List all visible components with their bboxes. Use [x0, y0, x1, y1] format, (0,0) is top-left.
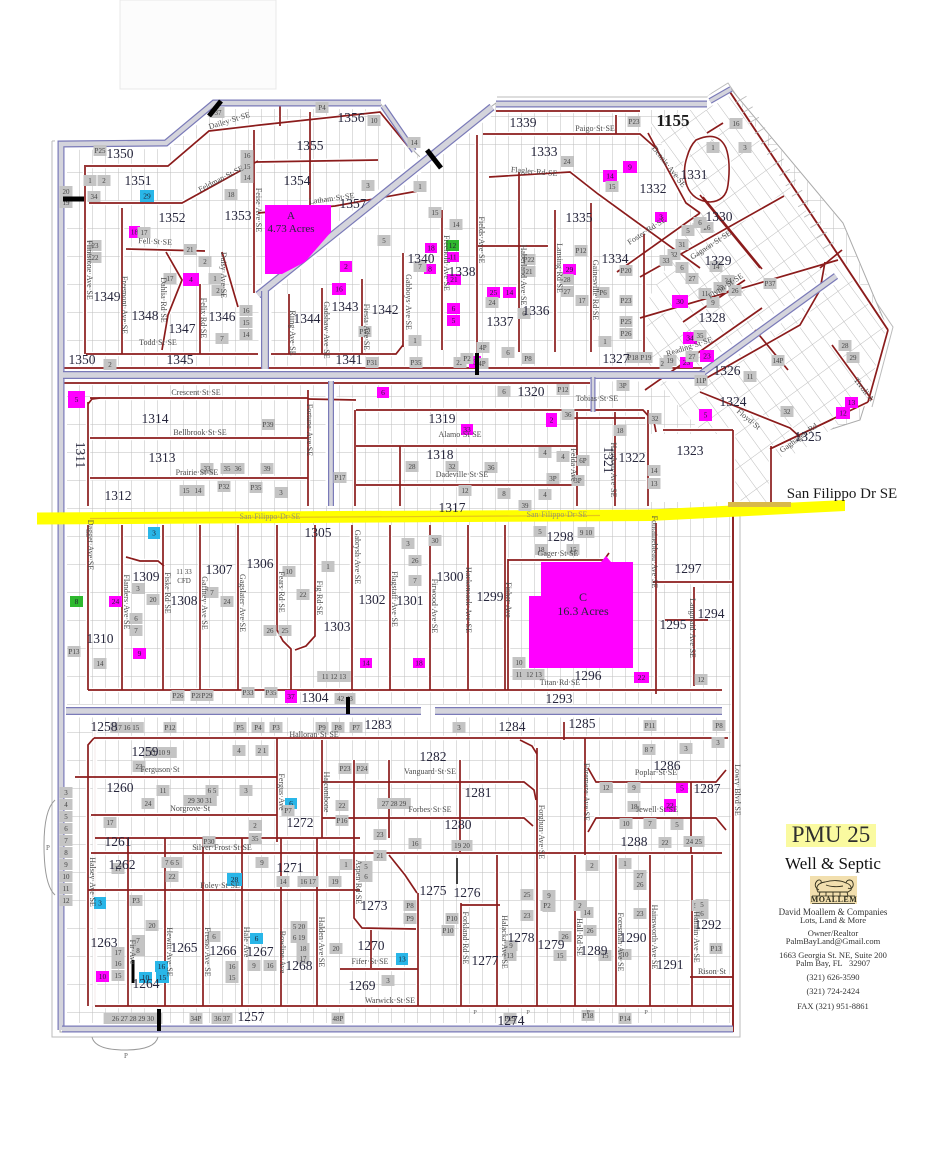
- svg-text:1155: 1155: [656, 111, 689, 130]
- svg-text:36: 36: [565, 411, 573, 419]
- svg-text:P9: P9: [406, 915, 414, 923]
- svg-text:6: 6: [452, 304, 456, 313]
- svg-text:1297: 1297: [675, 561, 702, 576]
- svg-text:12: 12: [603, 784, 611, 792]
- svg-text:22: 22: [638, 673, 646, 682]
- svg-text:FAX (321) 951-8861: FAX (321) 951-8861: [797, 1001, 869, 1011]
- svg-text:3: 3: [386, 977, 390, 985]
- svg-text:P12: P12: [576, 247, 587, 255]
- svg-text:Forkland·Rd·SE: Forkland·Rd·SE: [461, 912, 470, 965]
- svg-text:Langmaid·Ave·SE: Langmaid·Ave·SE: [688, 598, 697, 658]
- svg-text:1342: 1342: [372, 302, 399, 317]
- svg-text:28: 28: [409, 463, 417, 471]
- svg-text:1313: 1313: [149, 450, 176, 465]
- svg-text:Ferguson·St: Ferguson·St: [141, 765, 181, 774]
- svg-text:6: 6: [680, 264, 684, 272]
- svg-text:12: 12: [839, 409, 847, 418]
- svg-text:18: 18: [617, 427, 625, 435]
- svg-text:Halcombone: Halcombone: [322, 772, 331, 813]
- svg-text:14: 14: [97, 660, 105, 668]
- svg-text:14: 14: [280, 878, 288, 886]
- svg-text:16: 16: [267, 962, 275, 970]
- svg-text:26: 26: [267, 627, 275, 635]
- svg-text:5: 5: [364, 863, 368, 871]
- svg-text:1: 1: [603, 338, 607, 346]
- svg-text:24 25: 24 25: [686, 838, 702, 846]
- svg-text:1298: 1298: [547, 529, 574, 544]
- svg-text:Todd·St·SE: Todd·St·SE: [139, 338, 177, 347]
- svg-text:1: 1: [623, 860, 627, 868]
- svg-text:1314: 1314: [142, 411, 169, 426]
- svg-text:27: 27: [637, 872, 645, 880]
- svg-text:P13: P13: [69, 648, 80, 656]
- svg-text:7: 7: [210, 589, 214, 597]
- svg-text:P10: P10: [443, 927, 454, 935]
- svg-text:7: 7: [64, 837, 68, 845]
- svg-text:22: 22: [169, 873, 177, 881]
- svg-text:16: 16: [243, 307, 251, 315]
- svg-text:4P: 4P: [478, 360, 486, 368]
- svg-text:16: 16: [115, 960, 123, 968]
- svg-text:15: 15: [609, 183, 617, 191]
- svg-text:27: 27: [689, 275, 697, 283]
- svg-text:P19: P19: [641, 354, 652, 362]
- svg-text:Haberland·Ave·SE: Haberland·Ave·SE: [519, 245, 528, 306]
- svg-text:9: 9: [547, 892, 551, 900]
- svg-text:Prairie·St·SE: Prairie·St·SE: [176, 468, 219, 477]
- svg-text:4: 4: [189, 275, 193, 284]
- svg-text:11: 11: [747, 373, 754, 381]
- svg-text:San·Filippo·Dr·SE: San·Filippo·Dr·SE: [527, 510, 588, 519]
- svg-text:9: 9: [138, 649, 142, 658]
- svg-text:P32: P32: [219, 483, 230, 491]
- svg-text:1291: 1291: [657, 957, 684, 972]
- svg-text:1337: 1337: [487, 314, 514, 329]
- svg-text:1282: 1282: [420, 749, 447, 764]
- svg-text:37: 37: [287, 692, 295, 701]
- svg-text:15: 15: [115, 972, 123, 980]
- svg-text:P26: P26: [621, 330, 632, 338]
- svg-text:1288: 1288: [621, 834, 648, 849]
- svg-text:1327: 1327: [603, 351, 630, 366]
- svg-text:9: 9: [64, 861, 68, 869]
- svg-text:Forbes·St·SE: Forbes·St·SE: [408, 805, 451, 814]
- svg-text:36 37: 36 37: [214, 1015, 230, 1023]
- svg-text:1351: 1351: [125, 173, 152, 188]
- svg-text:8: 8: [502, 490, 506, 498]
- svg-text:San Filippo Dr SE: San Filippo Dr SE: [787, 486, 897, 502]
- svg-text:5: 5: [382, 237, 386, 245]
- svg-text:Lowry·Blvd·SE: Lowry·Blvd·SE: [733, 764, 742, 816]
- svg-text:14: 14: [651, 467, 659, 475]
- svg-text:1: 1: [418, 183, 422, 191]
- svg-text:P24: P24: [357, 765, 368, 773]
- svg-text:15: 15: [229, 974, 237, 982]
- svg-text:1277: 1277: [472, 953, 499, 968]
- svg-text:1332: 1332: [640, 181, 667, 196]
- svg-text:3: 3: [684, 745, 688, 753]
- svg-text:35: 35: [224, 465, 232, 473]
- svg-text:1352: 1352: [159, 210, 186, 225]
- svg-text:26: 26: [732, 287, 740, 295]
- svg-text:1340: 1340: [408, 251, 435, 266]
- svg-text:MOALLEM: MOALLEM: [811, 895, 858, 904]
- svg-text:Felix·Rd·SE: Felix·Rd·SE: [199, 298, 208, 339]
- svg-text:Foley·St·SE: Foley·St·SE: [200, 881, 240, 890]
- svg-text:48P: 48P: [333, 1015, 344, 1023]
- svg-text:1299: 1299: [477, 589, 504, 604]
- svg-text:22: 22: [662, 839, 670, 847]
- svg-text:1268: 1268: [286, 958, 313, 973]
- svg-text:3: 3: [136, 585, 140, 593]
- svg-text:Alamo·St·SE: Alamo·St·SE: [438, 430, 481, 439]
- svg-text:Forghun·Ave·SE: Forghun·Ave·SE: [537, 805, 546, 859]
- svg-text:P11: P11: [645, 722, 656, 730]
- svg-text:P: P: [526, 1009, 530, 1016]
- svg-text:1290: 1290: [620, 930, 647, 945]
- svg-text:Warwick·St·SE: Warwick·St·SE: [365, 996, 415, 1005]
- svg-text:5: 5: [64, 813, 68, 821]
- svg-text:Rison·St: Rison·St: [698, 967, 727, 976]
- svg-text:P37: P37: [765, 280, 776, 288]
- svg-text:5: 5: [452, 316, 456, 325]
- svg-text:1328: 1328: [699, 310, 726, 325]
- svg-text:6: 6: [381, 388, 385, 397]
- svg-text:1356: 1356: [338, 110, 365, 125]
- svg-text:P26: P26: [173, 692, 184, 700]
- svg-text:Fig·Rd·SE: Fig·Rd·SE: [315, 581, 324, 616]
- svg-text:6: 6: [506, 349, 510, 357]
- svg-text:San·Filippo·Dr·SE: San·Filippo·Dr·SE: [240, 512, 301, 521]
- svg-text:1318: 1318: [427, 447, 454, 462]
- svg-text:1280: 1280: [445, 817, 472, 832]
- svg-text:18: 18: [131, 228, 139, 237]
- svg-text:6: 6: [255, 934, 259, 943]
- svg-text:15: 15: [557, 952, 565, 960]
- svg-text:5: 5: [675, 821, 679, 829]
- svg-text:1355: 1355: [297, 138, 324, 153]
- svg-text:39: 39: [522, 502, 530, 510]
- svg-text:1357: 1357: [340, 196, 367, 211]
- svg-text:16: 16: [244, 152, 252, 160]
- svg-text:1263: 1263: [91, 935, 118, 950]
- svg-text:14: 14: [411, 139, 419, 147]
- svg-text:Feise·Ave·SE: Feise·Ave·SE: [254, 188, 263, 232]
- svg-text:25: 25: [282, 627, 290, 635]
- svg-text:1311: 1311: [73, 442, 88, 469]
- svg-text:2: 2: [590, 862, 594, 870]
- svg-text:3: 3: [366, 182, 370, 190]
- svg-text:P31: P31: [367, 359, 378, 367]
- svg-text:P: P: [586, 1009, 590, 1016]
- svg-text:17: 17: [579, 297, 587, 305]
- svg-text:17: 17: [107, 819, 115, 827]
- svg-text:5: 5: [704, 411, 708, 420]
- svg-text:1: 1: [413, 337, 417, 345]
- svg-text:29: 29: [143, 192, 151, 201]
- svg-text:7: 7: [413, 577, 417, 585]
- svg-text:24: 24: [145, 800, 153, 808]
- svg-text:1: 1: [326, 563, 330, 571]
- svg-text:4: 4: [543, 449, 547, 457]
- svg-text:1272: 1272: [287, 815, 314, 830]
- svg-text:1350: 1350: [107, 146, 134, 161]
- svg-text:13: 13: [651, 480, 659, 488]
- svg-text:(321) 724-2424: (321) 724-2424: [806, 986, 860, 996]
- svg-text:11: 11: [516, 671, 523, 679]
- svg-text:P35: P35: [411, 359, 422, 367]
- svg-text:1258: 1258: [91, 719, 118, 734]
- svg-text:14: 14: [362, 659, 370, 668]
- svg-text:P13: P13: [711, 945, 722, 953]
- svg-text:Fifer·St·SE: Fifer·St·SE: [352, 957, 389, 966]
- svg-text:1: 1: [344, 861, 348, 869]
- svg-text:P: P: [473, 1009, 477, 1016]
- svg-text:1259: 1259: [132, 744, 159, 759]
- svg-text:1331: 1331: [681, 167, 708, 182]
- svg-text:Fortune·Ave·SE: Fortune·Ave·SE: [305, 404, 314, 456]
- svg-text:1343: 1343: [332, 299, 359, 314]
- svg-text:11P: 11P: [696, 377, 707, 385]
- svg-text:5 20: 5 20: [293, 923, 306, 931]
- svg-text:1338: 1338: [449, 264, 476, 279]
- svg-text:Dagget·Ave·SE: Dagget·Ave·SE: [86, 520, 95, 571]
- svg-text:6P: 6P: [579, 457, 587, 465]
- svg-text:20: 20: [63, 188, 71, 196]
- svg-text:8: 8: [75, 597, 79, 606]
- svg-text:6: 6: [134, 615, 138, 623]
- svg-text:9: 9: [628, 163, 632, 172]
- svg-text:6 19: 6 19: [293, 934, 306, 942]
- svg-text:16: 16: [229, 963, 237, 971]
- svg-text:P8: P8: [524, 355, 532, 363]
- svg-text:Firwood·Ave·SE: Firwood·Ave·SE: [430, 579, 439, 634]
- svg-text:16.3 Acres: 16.3 Acres: [557, 604, 609, 618]
- svg-text:3: 3: [244, 787, 248, 795]
- svg-text:1289: 1289: [581, 943, 608, 958]
- svg-text:P3: P3: [132, 897, 140, 905]
- svg-text:1257: 1257: [238, 1009, 265, 1024]
- svg-text:20: 20: [149, 922, 157, 930]
- svg-text:25: 25: [490, 288, 498, 297]
- svg-text:1281: 1281: [465, 785, 492, 800]
- svg-text:1335: 1335: [566, 210, 593, 225]
- svg-text:4P: 4P: [479, 344, 487, 352]
- svg-text:7: 7: [220, 335, 224, 343]
- svg-text:Daisy·Ave·SE: Daisy·Ave·SE: [219, 252, 228, 298]
- svg-text:P16: P16: [337, 817, 348, 825]
- svg-text:P23: P23: [629, 118, 640, 126]
- svg-text:14: 14: [243, 331, 251, 339]
- svg-text:1310: 1310: [87, 631, 114, 646]
- svg-text:23: 23: [524, 912, 532, 920]
- svg-text:20: 20: [150, 596, 158, 604]
- svg-text:36: 36: [488, 464, 496, 472]
- svg-text:2: 2: [108, 361, 112, 369]
- svg-text:1283: 1283: [365, 717, 392, 732]
- svg-text:1286: 1286: [654, 758, 681, 773]
- svg-text:Fields·Ave·SE: Fields·Ave·SE: [477, 217, 486, 264]
- svg-text:1271: 1271: [277, 860, 304, 875]
- svg-text:1322: 1322: [619, 450, 646, 465]
- svg-text:23: 23: [703, 352, 711, 361]
- svg-text:5: 5: [680, 784, 684, 793]
- svg-text:8 7: 8 7: [645, 746, 654, 754]
- svg-text:Gabboys·Ave·SE: Gabboys·Ave·SE: [404, 274, 413, 330]
- svg-text:P33: P33: [243, 689, 254, 697]
- svg-text:30: 30: [432, 537, 440, 545]
- svg-text:1304: 1304: [302, 690, 329, 705]
- svg-text:23: 23: [637, 910, 645, 918]
- svg-text:18: 18: [415, 659, 423, 668]
- svg-text:P: P: [124, 1052, 128, 1060]
- svg-text:1333: 1333: [531, 144, 558, 159]
- svg-text:3: 3: [743, 144, 747, 152]
- svg-text:Felda·Ave: Felda·Ave: [569, 448, 578, 482]
- svg-text:Fell·St·SE: Fell·St·SE: [138, 236, 172, 247]
- svg-text:P25: P25: [621, 318, 632, 326]
- svg-text:4: 4: [64, 801, 68, 809]
- svg-text:1265: 1265: [171, 940, 198, 955]
- svg-text:4: 4: [543, 491, 547, 499]
- svg-text:34P: 34P: [191, 1015, 202, 1023]
- svg-text:1300: 1300: [437, 569, 464, 584]
- svg-text:10: 10: [516, 659, 524, 667]
- svg-text:Gainesville·Rd·SE: Gainesville·Rd·SE: [591, 260, 600, 321]
- svg-text:1278: 1278: [508, 930, 535, 945]
- svg-text:16: 16: [335, 285, 343, 294]
- svg-text:3: 3: [279, 489, 283, 497]
- svg-text:1312: 1312: [105, 488, 132, 503]
- svg-text:Gager·St·SE: Gager·St·SE: [538, 549, 579, 558]
- svg-text:4: 4: [237, 747, 241, 755]
- svg-text:22: 22: [300, 591, 308, 599]
- svg-text:3: 3: [406, 540, 410, 548]
- svg-text:14: 14: [453, 221, 461, 229]
- svg-text:Hackensack·Ave·SE: Hackensack·Ave·SE: [464, 567, 473, 633]
- svg-text:42 43: 42 43: [337, 695, 353, 703]
- svg-text:Paigo·St·SE: Paigo·St·SE: [575, 124, 615, 133]
- svg-text:2: 2: [550, 416, 554, 425]
- svg-text:Fiesta·Ave·SE: Fiesta·Ave·SE: [362, 304, 371, 351]
- svg-text:1264: 1264: [133, 976, 160, 991]
- svg-text:P23: P23: [621, 297, 632, 305]
- svg-text:1261: 1261: [105, 834, 132, 849]
- svg-text:1303: 1303: [324, 619, 351, 634]
- svg-text:PMU 25: PMU 25: [792, 822, 871, 847]
- svg-text:14: 14: [244, 174, 252, 182]
- svg-text:Dadeville·St·SE: Dadeville·St·SE: [436, 470, 489, 479]
- svg-text:1330: 1330: [706, 209, 733, 224]
- svg-text:5: 5: [700, 901, 704, 909]
- svg-text:4: 4: [561, 453, 565, 461]
- svg-text:Gadshaw·Ave·SE: Gadshaw·Ave·SE: [322, 301, 331, 358]
- svg-text:Fontainebleau·Ave·SE: Fontainebleau·Ave·SE: [650, 516, 659, 589]
- svg-text:12: 12: [698, 676, 706, 684]
- svg-text:10: 10: [63, 873, 71, 881]
- svg-text:Palm Bay, FL 32907: Palm Bay, FL 32907: [796, 958, 871, 968]
- svg-text:P14: P14: [620, 1015, 631, 1023]
- svg-text:P2: P2: [543, 902, 551, 910]
- svg-text:26: 26: [637, 881, 645, 889]
- svg-text:26: 26: [587, 927, 595, 935]
- svg-text:P8: P8: [406, 902, 414, 910]
- svg-text:1339: 1339: [510, 115, 537, 130]
- svg-text:16 17: 16 17: [300, 878, 316, 886]
- svg-text:1306: 1306: [247, 556, 274, 571]
- svg-text:2: 2: [102, 177, 106, 185]
- svg-text:P: P: [644, 1009, 648, 1016]
- svg-text:1293: 1293: [546, 691, 573, 706]
- svg-text:Dahlia·Rd·SE: Dahlia·Rd·SE: [159, 277, 168, 322]
- svg-text:CFD: CFD: [177, 577, 191, 585]
- svg-text:39: 39: [264, 465, 272, 473]
- svg-text:2 1: 2 1: [258, 747, 267, 755]
- svg-text:1324: 1324: [720, 394, 747, 409]
- svg-text:1267: 1267: [247, 944, 274, 959]
- svg-text:33: 33: [663, 257, 671, 265]
- svg-text:23: 23: [377, 831, 385, 839]
- svg-text:14: 14: [606, 172, 614, 181]
- svg-text:A: A: [287, 210, 295, 222]
- svg-text:1273: 1273: [361, 898, 388, 913]
- svg-text:31: 31: [679, 241, 687, 249]
- svg-text:1329: 1329: [705, 253, 732, 268]
- svg-text:1346: 1346: [209, 309, 236, 324]
- svg-text:1302: 1302: [359, 592, 386, 607]
- svg-text:5: 5: [75, 395, 79, 404]
- svg-text:P35: P35: [251, 484, 262, 492]
- svg-text:26: 26: [412, 557, 420, 565]
- svg-text:P10: P10: [447, 915, 458, 923]
- svg-text:P12: P12: [558, 386, 569, 394]
- svg-text:3: 3: [152, 529, 156, 538]
- svg-text:4.73 Acres: 4.73 Acres: [267, 223, 314, 235]
- svg-text:16: 16: [412, 840, 420, 848]
- svg-text:Tobias·St·SE: Tobias·St·SE: [576, 394, 619, 403]
- svg-text:P39: P39: [263, 421, 274, 429]
- svg-text:1345: 1345: [167, 352, 194, 367]
- svg-text:Gabrysh·Ave·SE: Gabrysh·Ave·SE: [353, 530, 362, 585]
- svg-text:24: 24: [224, 598, 232, 606]
- svg-text:1344: 1344: [294, 311, 321, 326]
- svg-text:1321: 1321: [601, 447, 616, 474]
- svg-text:1319: 1319: [429, 411, 456, 426]
- svg-text:2: 2: [203, 258, 207, 266]
- svg-text:1354: 1354: [284, 173, 311, 188]
- svg-text:P17: P17: [335, 474, 346, 482]
- svg-text:9: 9: [252, 962, 256, 970]
- svg-text:P2: P2: [463, 355, 471, 363]
- svg-text:10: 10: [99, 972, 107, 981]
- svg-text:Silver·Frost·St·SE: Silver·Frost·St·SE: [192, 843, 252, 852]
- svg-text:Vanguard·St·SE: Vanguard·St·SE: [404, 767, 456, 776]
- svg-text:35: 35: [252, 835, 260, 843]
- svg-text:1323: 1323: [677, 443, 704, 458]
- svg-text:1279: 1279: [538, 937, 565, 952]
- svg-text:21: 21: [377, 852, 385, 860]
- svg-text:Crescent·St·SE: Crescent·St·SE: [171, 388, 220, 397]
- svg-text:15: 15: [183, 487, 191, 495]
- svg-text:32: 32: [652, 415, 660, 423]
- svg-text:13: 13: [398, 955, 406, 964]
- svg-text:16: 16: [733, 120, 741, 128]
- svg-text:34: 34: [91, 193, 99, 201]
- svg-text:1326: 1326: [714, 363, 741, 378]
- svg-text:3: 3: [457, 724, 461, 732]
- svg-text:1341: 1341: [336, 352, 363, 367]
- svg-text:17: 17: [115, 949, 123, 957]
